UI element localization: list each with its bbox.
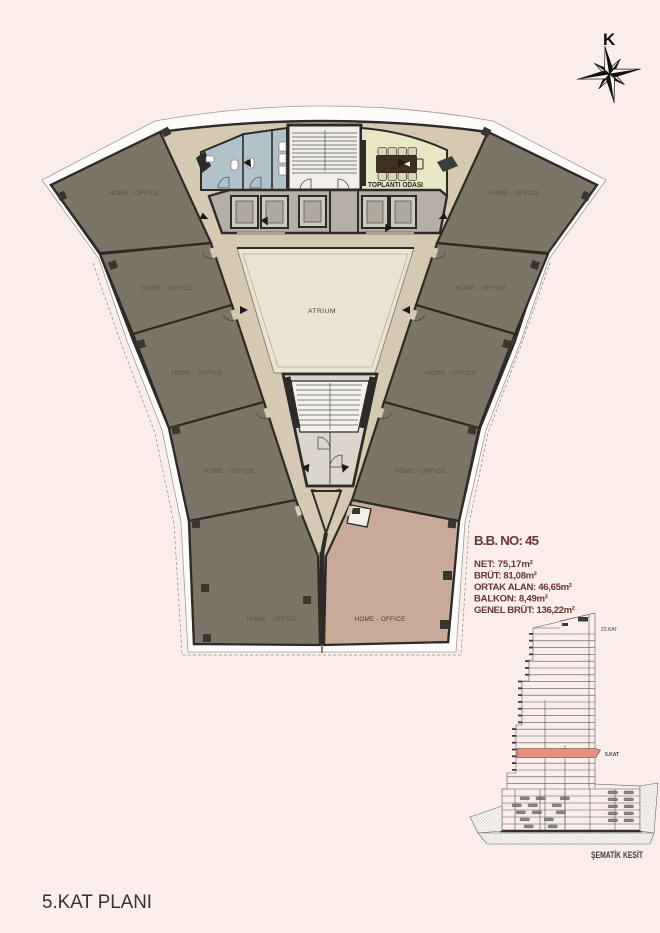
svg-text:BRÜT: 81,08m²: BRÜT: 81,08m²: [474, 571, 537, 582]
svg-text:5.KAT: 5.KAT: [605, 752, 619, 758]
svg-text:BALKON: 8,49m²: BALKON: 8,49m²: [474, 594, 548, 605]
svg-text:HOME - OFFICE: HOME - OFFICE: [172, 370, 223, 377]
svg-text:HOME - OFFICE: HOME - OFFICE: [456, 285, 507, 292]
svg-text:HOME - OFFICE: HOME - OFFICE: [395, 468, 446, 475]
svg-text:22.KAT: 22.KAT: [601, 627, 617, 633]
svg-text:HOME - OFFICE: HOME - OFFICE: [204, 468, 255, 475]
svg-text:5.KAT PLANI: 5.KAT PLANI: [42, 892, 152, 913]
svg-text:ŞEMATİK KESİT: ŞEMATİK KESİT: [591, 850, 643, 861]
svg-text:TOPLANTI ODASI: TOPLANTI ODASI: [368, 182, 423, 189]
svg-text:ORTAK ALAN: 46,65m²: ORTAK ALAN: 46,65m²: [474, 582, 572, 593]
svg-text:GENEL BRÜT: 136,22m²: GENEL BRÜT: 136,22m²: [474, 605, 575, 616]
svg-text:HOME - OFFICE: HOME - OFFICE: [489, 190, 540, 197]
svg-text:B.B. NO: 45: B.B. NO: 45: [474, 533, 539, 548]
svg-text:HOME - OFFICE: HOME - OFFICE: [355, 616, 406, 623]
svg-text:ATRIUM: ATRIUM: [308, 308, 336, 315]
svg-text:HOME - OFFICE: HOME - OFFICE: [109, 190, 160, 197]
svg-text:HOME - OFFICE: HOME - OFFICE: [426, 370, 477, 377]
svg-text:HOME - OFFICE: HOME - OFFICE: [247, 616, 298, 623]
svg-text:HOME - OFFICE: HOME - OFFICE: [142, 285, 193, 292]
svg-text:NET: 75,17m²: NET: 75,17m²: [474, 559, 533, 570]
